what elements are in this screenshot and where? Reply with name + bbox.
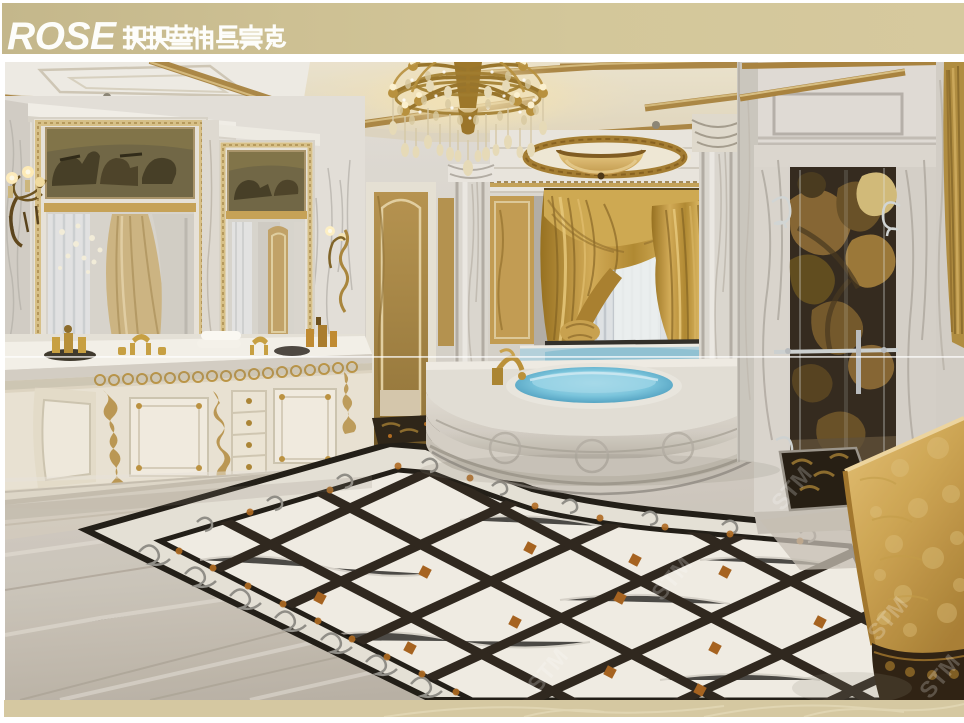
svg-text:ROSE: ROSE xyxy=(7,15,117,54)
